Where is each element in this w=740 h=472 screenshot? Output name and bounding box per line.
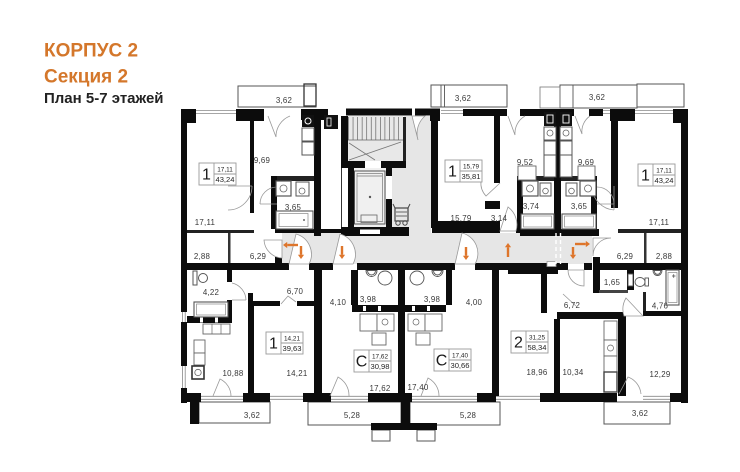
svg-text:1: 1: [269, 336, 278, 353]
svg-text:1: 1: [202, 167, 211, 184]
svg-text:Секция 2: Секция 2: [44, 67, 128, 88]
svg-text:35,81: 35,81: [461, 172, 480, 181]
svg-text:17,62: 17,62: [370, 384, 391, 393]
svg-text:30,98: 30,98: [370, 362, 389, 371]
svg-text:9,52: 9,52: [517, 158, 533, 167]
svg-text:6,29: 6,29: [617, 252, 634, 261]
svg-text:15,79: 15,79: [463, 164, 479, 171]
svg-text:17,11: 17,11: [656, 168, 672, 175]
svg-text:4,22: 4,22: [203, 288, 219, 297]
svg-text:17,11: 17,11: [217, 167, 233, 174]
svg-text:12,29: 12,29: [650, 370, 671, 379]
svg-text:4,10: 4,10: [330, 298, 347, 307]
svg-text:4,76: 4,76: [652, 301, 669, 310]
svg-text:14,21: 14,21: [287, 369, 308, 378]
svg-text:17,62: 17,62: [372, 354, 388, 361]
svg-text:10,88: 10,88: [223, 369, 244, 378]
svg-text:39,63: 39,63: [282, 344, 301, 353]
svg-text:1,65: 1,65: [604, 278, 621, 287]
svg-text:3,62: 3,62: [632, 409, 648, 418]
svg-text:6,29: 6,29: [250, 252, 267, 261]
svg-text:17,40: 17,40: [452, 353, 468, 360]
svg-text:30,66: 30,66: [450, 361, 469, 370]
svg-text:4,00: 4,00: [466, 298, 483, 307]
svg-text:10,34: 10,34: [563, 368, 584, 377]
svg-text:17,11: 17,11: [195, 218, 215, 227]
svg-text:14,21: 14,21: [284, 336, 300, 343]
svg-text:3,62: 3,62: [455, 94, 471, 103]
svg-text:17,11: 17,11: [649, 218, 669, 227]
svg-text:18,96: 18,96: [527, 368, 548, 377]
svg-text:С: С: [436, 353, 448, 370]
svg-text:17,40: 17,40: [408, 383, 429, 392]
svg-text:43,24: 43,24: [215, 175, 234, 184]
svg-text:План 5-7 этажей: План 5-7 этажей: [44, 90, 164, 107]
svg-text:58,34: 58,34: [527, 343, 546, 352]
svg-text:5,28: 5,28: [344, 411, 361, 420]
svg-text:3,98: 3,98: [360, 295, 377, 304]
svg-text:6,72: 6,72: [564, 301, 580, 310]
svg-text:3,98: 3,98: [424, 295, 441, 304]
svg-text:КОРПУС 2: КОРПУС 2: [44, 41, 138, 62]
svg-text:2,88: 2,88: [194, 252, 211, 261]
svg-text:6,70: 6,70: [287, 287, 304, 296]
svg-text:31,25: 31,25: [529, 335, 545, 342]
svg-text:3,74: 3,74: [523, 202, 540, 211]
svg-text:С: С: [356, 354, 368, 371]
svg-text:15,79: 15,79: [451, 214, 472, 223]
svg-text:3,14: 3,14: [491, 214, 508, 223]
svg-text:9,69: 9,69: [578, 158, 595, 167]
svg-text:3,65: 3,65: [285, 203, 302, 212]
svg-text:2: 2: [514, 335, 523, 352]
svg-text:2,88: 2,88: [656, 252, 673, 261]
svg-text:43,24: 43,24: [654, 176, 673, 185]
svg-text:3,65: 3,65: [571, 202, 588, 211]
svg-text:9,69: 9,69: [254, 156, 271, 165]
svg-text:5,28: 5,28: [460, 411, 477, 420]
svg-text:3,62: 3,62: [244, 411, 260, 420]
svg-text:3,62: 3,62: [276, 96, 292, 105]
svg-text:1: 1: [448, 164, 457, 181]
svg-text:3,62: 3,62: [589, 93, 605, 102]
svg-text:1: 1: [641, 168, 650, 185]
